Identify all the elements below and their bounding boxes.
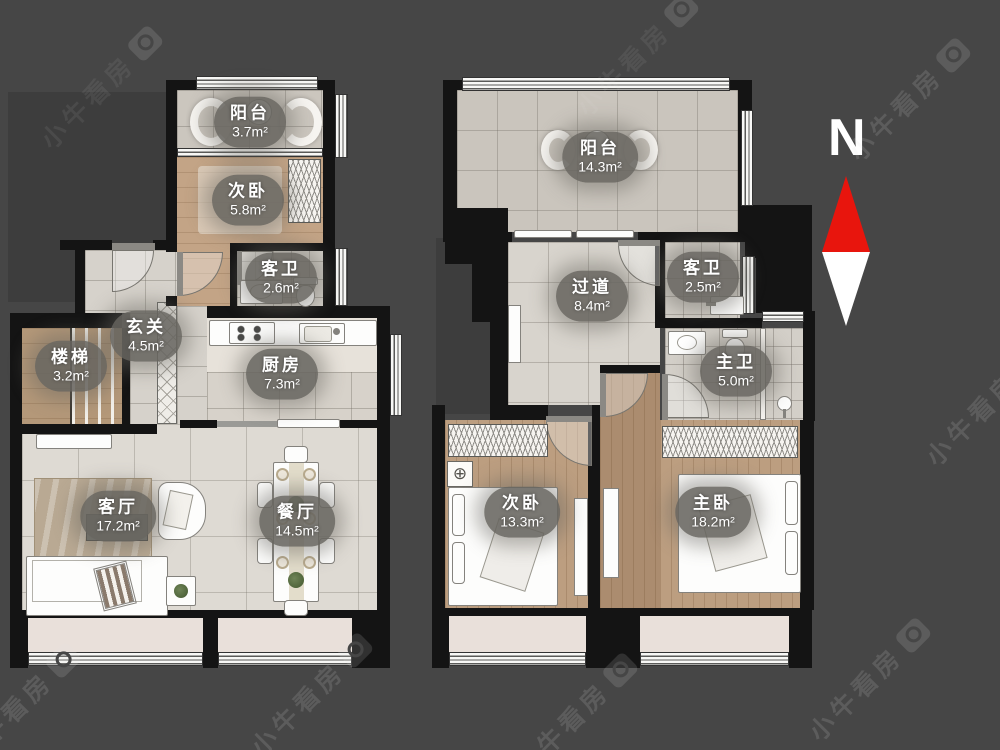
door-leaf xyxy=(177,252,183,296)
bed-pillow xyxy=(785,481,798,525)
room-name: 阳台 xyxy=(578,138,622,159)
toilet-tank xyxy=(722,329,748,338)
wall xyxy=(207,306,390,318)
wall xyxy=(432,405,445,620)
wall xyxy=(10,424,157,434)
room-name: 阳台 xyxy=(230,103,270,124)
room-area: 2.6m² xyxy=(261,280,301,298)
wall xyxy=(230,243,237,308)
wall xyxy=(323,80,335,308)
room-name: 客卫 xyxy=(683,258,723,279)
camera-icon xyxy=(125,24,164,63)
shower-stem xyxy=(783,409,786,418)
room-label-stairs: 楼梯 3.2m² xyxy=(35,341,107,392)
room-area: 7.3m² xyxy=(262,376,302,394)
room-area: 14.3m² xyxy=(578,159,622,177)
room-name: 楼梯 xyxy=(51,347,91,368)
floor-foyer-walkway xyxy=(177,306,207,424)
stove xyxy=(229,322,275,344)
floorplan-canvas: 阳台 3.7m² 次卧 5.8m² 客卫 2.6m² 玄关 4.5m² 楼梯 3… xyxy=(0,0,1000,750)
room-area: 18.2m² xyxy=(691,514,735,532)
wall xyxy=(432,612,449,668)
wardrobe xyxy=(662,426,798,458)
wall xyxy=(237,243,323,251)
room-label-master-bedroom: 主卧 18.2m² xyxy=(675,487,751,538)
room-area: 13.3m² xyxy=(500,514,544,532)
room-name: 客卫 xyxy=(261,259,301,280)
room-area: 8.4m² xyxy=(572,298,612,316)
watermark: 小牛看房 xyxy=(840,32,976,168)
wall xyxy=(745,205,812,258)
plate xyxy=(276,468,289,481)
bed-pillow xyxy=(452,494,465,536)
watermark-text: 小牛看房 xyxy=(242,653,352,750)
watermark: 小牛看房 xyxy=(800,612,936,748)
plant xyxy=(288,572,304,588)
plate xyxy=(303,556,316,569)
room-area: 4.5m² xyxy=(126,338,166,356)
balcony-planter xyxy=(280,98,322,146)
wall xyxy=(789,612,812,668)
watermark-text: 小牛看房 xyxy=(0,663,60,750)
room-label-bedroom2: 次卧 5.8m² xyxy=(212,175,284,226)
wall xyxy=(340,420,377,428)
camera-icon xyxy=(933,36,972,75)
door-leaf xyxy=(662,374,668,420)
room-label-bedroom2: 次卧 13.3m² xyxy=(484,487,560,538)
wall xyxy=(10,612,28,668)
room-name: 次卧 xyxy=(228,181,268,202)
room-label-guest-bath: 客卫 2.5m² xyxy=(667,252,739,303)
kitchen-pass-window xyxy=(277,419,340,428)
faucet xyxy=(706,302,716,306)
sliding-door-panel xyxy=(514,230,572,238)
room-name: 主卫 xyxy=(716,352,756,373)
room-area: 17.2m² xyxy=(96,518,140,536)
wall xyxy=(377,306,390,620)
watermark-text: 小牛看房 xyxy=(507,673,617,750)
room-area: 5.8m² xyxy=(228,202,268,220)
wall xyxy=(490,405,548,420)
room-label-living: 客厅 17.2m² xyxy=(80,491,156,542)
watermark: 小牛看房 xyxy=(917,337,1000,473)
door-leaf xyxy=(618,240,660,246)
window-band xyxy=(762,311,804,322)
room-name: 过道 xyxy=(572,277,612,298)
room-name: 主卧 xyxy=(691,493,735,514)
sink-basin xyxy=(677,335,697,350)
wall xyxy=(655,318,762,328)
wall xyxy=(472,262,508,322)
kitchen-divider xyxy=(217,421,277,427)
wall xyxy=(756,258,812,313)
room-name: 次卧 xyxy=(500,493,544,514)
bay-window-band xyxy=(449,652,586,666)
room-label-kitchen: 厨房 7.3m² xyxy=(246,349,318,400)
room-label-guest-bath: 客卫 2.6m² xyxy=(245,253,317,304)
window-band xyxy=(390,334,402,416)
bay-window-band xyxy=(640,652,789,666)
room-name: 厨房 xyxy=(262,355,302,376)
door-leaf xyxy=(546,416,592,422)
room-label-foyer: 玄关 4.5m² xyxy=(110,311,182,362)
plate xyxy=(303,468,316,481)
floor-bay-window xyxy=(449,616,586,652)
hall-cabinet xyxy=(508,305,521,363)
wall xyxy=(203,612,218,668)
sliding-door-panel xyxy=(576,230,634,238)
room-name: 餐厅 xyxy=(275,502,319,523)
wall xyxy=(60,240,112,250)
room-label-balcony: 阳台 14.3m² xyxy=(562,132,638,183)
wall xyxy=(592,405,600,420)
window-band xyxy=(335,94,348,158)
door-leaf xyxy=(600,373,606,417)
wall xyxy=(153,240,177,250)
dining-chair xyxy=(284,446,308,463)
stair-bench xyxy=(36,434,112,449)
room-area: 3.2m² xyxy=(51,368,91,386)
window-band xyxy=(196,76,318,90)
wall xyxy=(166,296,177,306)
sink-basin xyxy=(304,326,332,342)
door-leaf xyxy=(112,243,155,250)
wall xyxy=(490,322,508,405)
room-area: 3.7m² xyxy=(230,124,270,142)
watermark-text: 小牛看房 xyxy=(917,363,1000,473)
wall xyxy=(180,420,217,428)
wall xyxy=(803,311,815,421)
wall xyxy=(800,420,814,610)
bed-pillow xyxy=(785,531,798,575)
wall xyxy=(75,240,85,315)
room-label-hallway: 过道 8.4m² xyxy=(556,271,628,322)
wardrobe xyxy=(288,159,321,223)
room-area: 14.5m² xyxy=(275,523,319,541)
window-band xyxy=(741,110,753,206)
wall xyxy=(10,313,22,620)
compass-south-arrow xyxy=(822,252,870,326)
dining-chair xyxy=(284,600,308,616)
room-label-master-bath: 主卫 5.0m² xyxy=(700,346,772,397)
room-label-balcony: 阳台 3.7m² xyxy=(214,97,286,148)
plant xyxy=(174,584,188,598)
wall xyxy=(445,208,508,264)
room-label-dining: 餐厅 14.5m² xyxy=(259,496,335,547)
room-name: 玄关 xyxy=(126,317,166,338)
faucet xyxy=(333,328,340,335)
window-band xyxy=(335,248,348,306)
bed-pillow xyxy=(452,542,465,584)
wardrobe xyxy=(448,424,548,457)
floor-bay-window xyxy=(640,616,789,652)
balcony-sill-window xyxy=(177,148,323,157)
wall xyxy=(10,313,122,328)
camera-icon xyxy=(661,0,700,30)
ac-unit-icon: ⊕ xyxy=(447,461,473,487)
wall xyxy=(166,80,177,252)
compass-north-arrow xyxy=(822,176,870,252)
plate xyxy=(276,556,289,569)
room-area: 2.5m² xyxy=(683,279,723,297)
room-area: 5.0m² xyxy=(716,373,756,391)
camera-icon xyxy=(893,616,932,655)
room-name: 客厅 xyxy=(96,497,140,518)
tall-cabinet xyxy=(574,498,588,596)
tall-cabinet xyxy=(603,488,619,578)
wall xyxy=(600,365,660,373)
watermark-text: 小牛看房 xyxy=(800,638,910,748)
